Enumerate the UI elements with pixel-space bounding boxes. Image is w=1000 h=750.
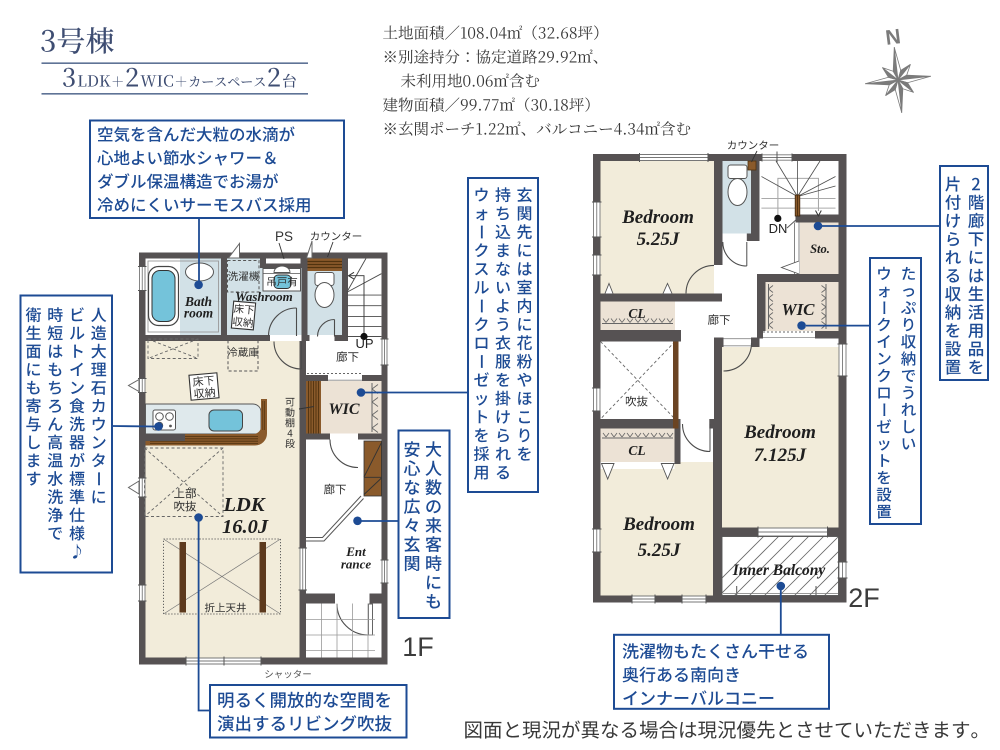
svg-text:Bedroom: Bedroom [622, 514, 695, 535]
svg-text:2F: 2F [848, 583, 880, 613]
svg-text:Bedroom: Bedroom [743, 422, 816, 443]
svg-text:room: room [184, 306, 213, 321]
svg-text:LDK: LDK [223, 494, 266, 516]
svg-text:UP: UP [355, 336, 373, 351]
svg-text:WIC: WIC [781, 300, 815, 319]
svg-text:5.25J: 5.25J [638, 540, 681, 561]
svg-text:CL: CL [628, 443, 645, 458]
svg-text:rance: rance [341, 557, 372, 572]
svg-text:WIC: WIC [328, 401, 359, 418]
svg-text:1F: 1F [402, 632, 434, 662]
svg-text:Sto.: Sto. [810, 242, 830, 256]
svg-text:7.125J: 7.125J [754, 445, 807, 466]
svg-text:PS: PS [275, 229, 293, 244]
svg-text:Bedroom: Bedroom [621, 207, 694, 228]
svg-text:N: N [884, 25, 902, 50]
svg-text:5.25J: 5.25J [637, 229, 680, 250]
svg-text:16.0J: 16.0J [222, 516, 269, 538]
svg-text:Inner Balcony: Inner Balcony [732, 562, 826, 579]
svg-text:CL: CL [628, 306, 645, 321]
svg-text:DN: DN [769, 221, 788, 236]
